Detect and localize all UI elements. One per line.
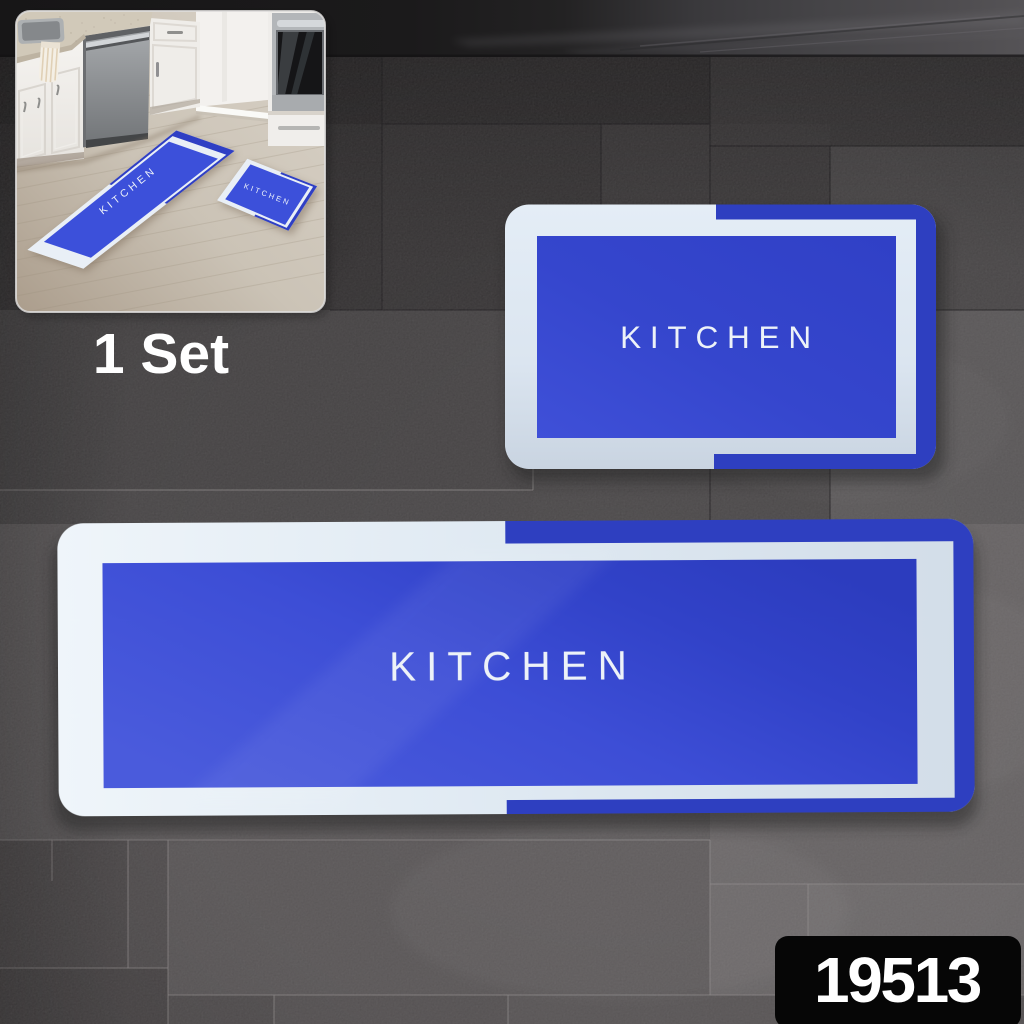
svg-text:1 Set: 1 Set [93,322,229,386]
svg-text:KITCHEN: KITCHEN [620,319,820,355]
svg-text:KITCHEN: KITCHEN [389,642,637,689]
svg-text:19513: 19513 [814,944,981,1016]
